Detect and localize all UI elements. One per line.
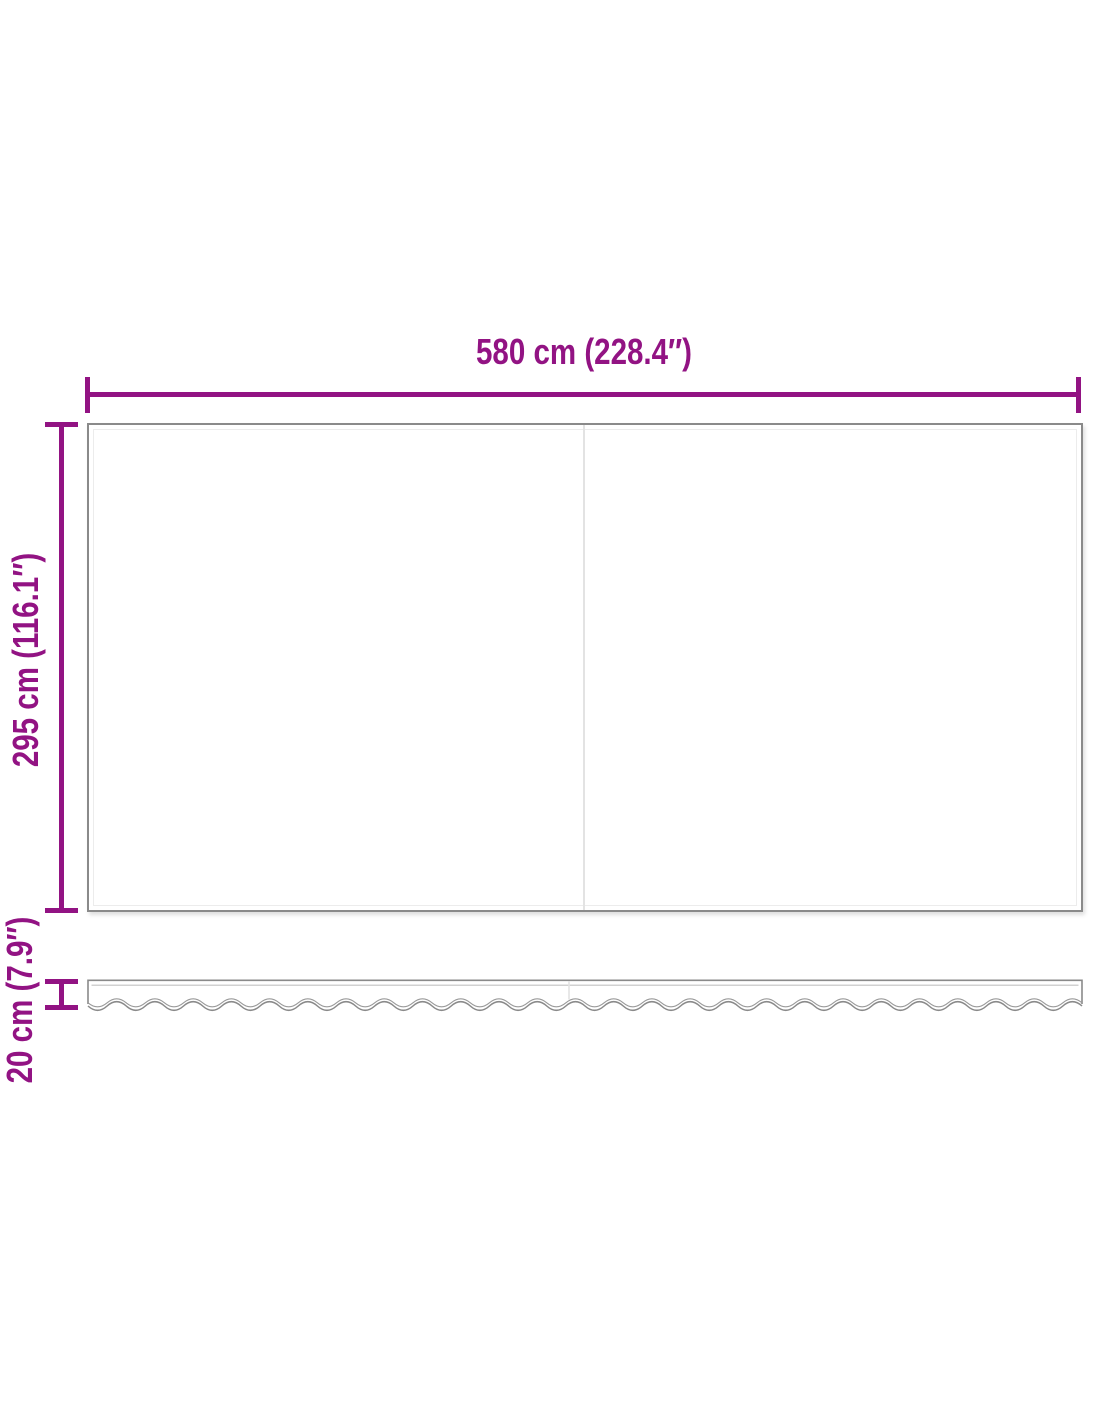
width-dimension-endcap-left — [85, 377, 90, 413]
fabric-inner-outline — [93, 429, 1077, 906]
valance-dimension-endcap-bottom — [45, 1005, 78, 1010]
awning-fabric-panel — [87, 423, 1083, 912]
valance-strip — [87, 979, 1083, 1021]
height-dimension-endcap-top — [45, 422, 78, 427]
fabric-center-seam — [583, 425, 585, 910]
height-dimension-line — [59, 422, 64, 913]
width-dimension-label: 580 cm (228.4″) — [476, 334, 692, 370]
valance-dimension-endcap-top — [45, 979, 78, 984]
height-dimension-endcap-bottom — [45, 908, 78, 913]
width-dimension-line — [85, 392, 1081, 397]
valance-height-dimension-label: 20 cm (7.9″) — [2, 917, 38, 1084]
width-dimension-endcap-right — [1076, 377, 1081, 413]
product-dimension-diagram: 580 cm (228.4″) 295 cm (116.1″) 20 cm (7… — [0, 0, 1100, 1422]
height-dimension-label: 295 cm (116.1″) — [8, 553, 44, 767]
